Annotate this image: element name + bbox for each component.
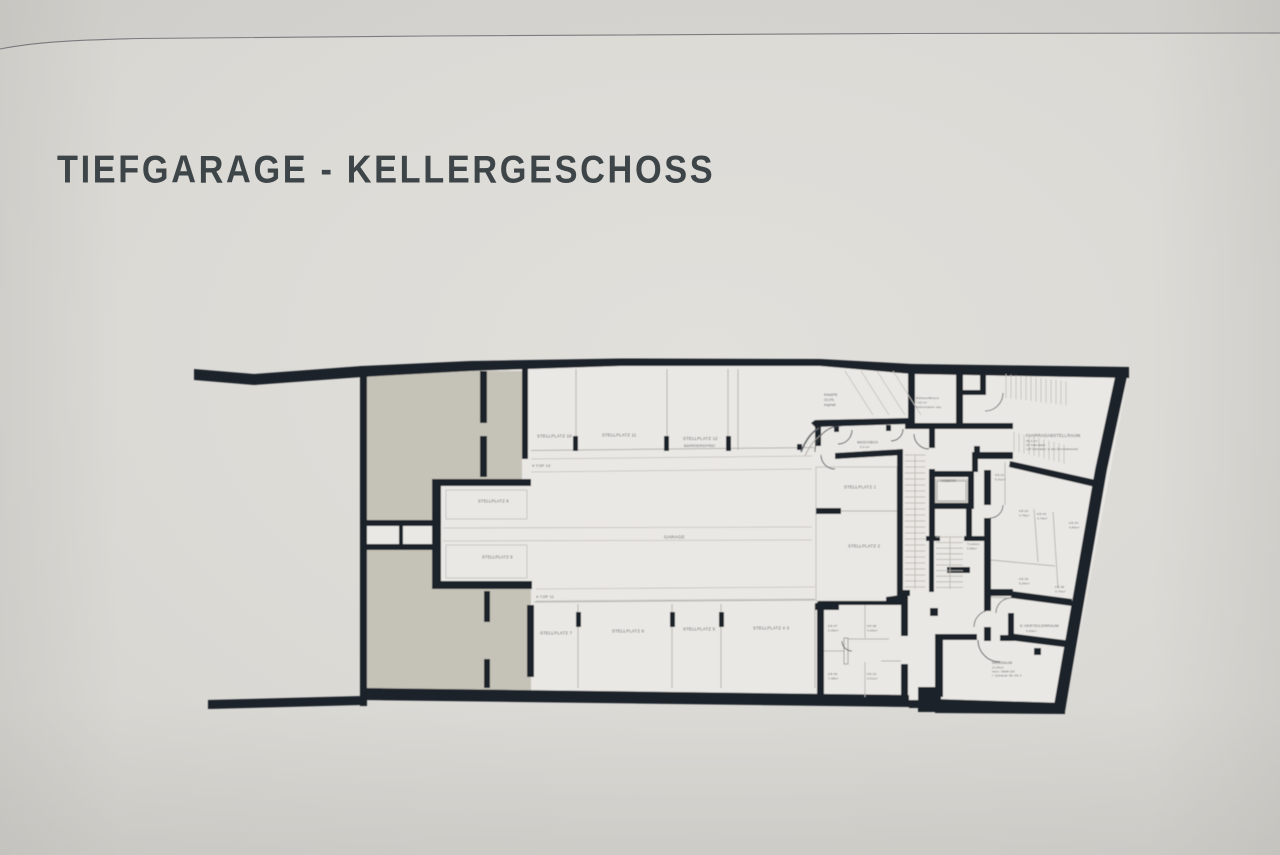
- svg-text:BARRIEREFREI: BARRIEREFREI: [684, 443, 715, 448]
- svg-text:HEIZRAUM: HEIZRAUM: [992, 661, 1012, 665]
- svg-text:KR 08: KR 08: [867, 624, 876, 628]
- svg-text:4,44m²: 4,44m²: [867, 629, 878, 633]
- svg-text:5,04m²: 5,04m²: [1019, 582, 1030, 586]
- svg-text:STELLPLATZ 7: STELLPLATZ 7: [540, 631, 573, 636]
- svg-text:Heizl. 50kW S/F: Heizl. 50kW S/F: [992, 670, 1015, 674]
- svg-text:TIEFGARAGE - KELLERGESCHOSS: TIEFGARAGE - KELLERGESCHOSS: [57, 147, 715, 191]
- svg-text:5,09m²: 5,09m²: [967, 547, 977, 551]
- svg-text:KR 04: KR 04: [1069, 521, 1078, 525]
- svg-text:20 Fahrräder: 20 Fahrräder: [1026, 443, 1046, 447]
- svg-text:FAHRRADABSTELLRAUM: FAHRRADABSTELLRAUM: [1026, 433, 1081, 438]
- svg-text:KR 06: KR 06: [1055, 585, 1064, 589]
- svg-text:STELLPLATZ 5: STELLPLATZ 5: [683, 627, 716, 632]
- svg-text:STELLPLATZ 10: STELLPLATZ 10: [537, 434, 572, 439]
- svg-text:KR 05: KR 05: [1019, 577, 1028, 581]
- svg-text:4 TOP 10: 4 TOP 10: [532, 463, 551, 468]
- svg-text:STELLPLATZ 1: STELLPLATZ 1: [844, 485, 877, 490]
- svg-text:4,03m²: 4,03m²: [1026, 629, 1037, 633]
- svg-text:KR 07: KR 07: [828, 624, 837, 628]
- svg-text:4,51m²: 4,51m²: [867, 677, 878, 681]
- svg-text:+20 Fahrräder in den Einzelabs: +20 Fahrräder in den Einzelabstellpl.: [1026, 447, 1079, 451]
- svg-text:WASCHBOX: WASCHBOX: [857, 441, 879, 445]
- svg-text:6,46m²: 6,46m²: [828, 629, 839, 633]
- svg-text:Trockenr.: Trockenr.: [967, 542, 980, 546]
- svg-text:E-VERTEILERRAUM: E-VERTEILERRAUM: [1020, 624, 1059, 628]
- svg-text:4,79m²: 4,79m²: [1019, 514, 1030, 518]
- svg-text:40,4 m²: 40,4 m²: [1026, 439, 1038, 443]
- svg-text:STELLPLATZ 8: STELLPLATZ 8: [482, 555, 513, 560]
- svg-text:STELLPLATZ 6: STELLPLATZ 6: [612, 629, 645, 634]
- svg-text:HOBBYR.: HOBBYR.: [941, 479, 957, 483]
- svg-text:STELLPLATZ 9: STELLPLATZ 9: [478, 499, 509, 504]
- svg-text:5,41m²: 5,41m²: [995, 478, 1006, 482]
- svg-text:4,84m²: 4,84m²: [1069, 526, 1080, 530]
- svg-text:4 TOP 11: 4 TOP 11: [536, 594, 555, 599]
- svg-text:STELLPLATZ 4 3: STELLPLATZ 4 3: [753, 626, 790, 631]
- svg-text:KR 10: KR 10: [867, 672, 876, 676]
- svg-text:STELLPLATZ 11: STELLPLATZ 11: [602, 433, 637, 438]
- svg-text:STELLPLATZ 2: STELLPLATZ 2: [848, 544, 881, 549]
- svg-text:KR 09: KR 09: [828, 672, 837, 676]
- svg-text:GARAGE: GARAGE: [664, 535, 685, 540]
- svg-text:KR 01: KR 01: [995, 473, 1004, 477]
- svg-text:7,38m²: 7,38m²: [828, 677, 839, 681]
- svg-text:4,74m²: 4,74m²: [1055, 590, 1066, 594]
- svg-text:Rollcontainer sep.: Rollcontainer sep.: [916, 405, 942, 409]
- svg-text:Asphalt: Asphalt: [824, 403, 836, 407]
- svg-text:KR 02: KR 02: [1019, 509, 1028, 513]
- svg-text:5,0 m²: 5,0 m²: [860, 445, 870, 449]
- svg-text:15,0%: 15,0%: [824, 398, 834, 402]
- svg-text:7,42 m²: 7,42 m²: [916, 401, 927, 405]
- svg-text:4,79m²: 4,79m²: [1037, 517, 1048, 521]
- svg-text:KR 03: KR 03: [1037, 512, 1046, 516]
- svg-text:STELLPLATZ 12: STELLPLATZ 12: [683, 436, 718, 441]
- svg-text:21,94m²: 21,94m²: [992, 666, 1004, 670]
- svg-text:f. Gebäude WL OG 3: f. Gebäude WL OG 3: [992, 674, 1022, 678]
- svg-text:RAMPE: RAMPE: [824, 393, 838, 397]
- svg-text:Müllraum/Besuch: Müllraum/Besuch: [916, 396, 939, 400]
